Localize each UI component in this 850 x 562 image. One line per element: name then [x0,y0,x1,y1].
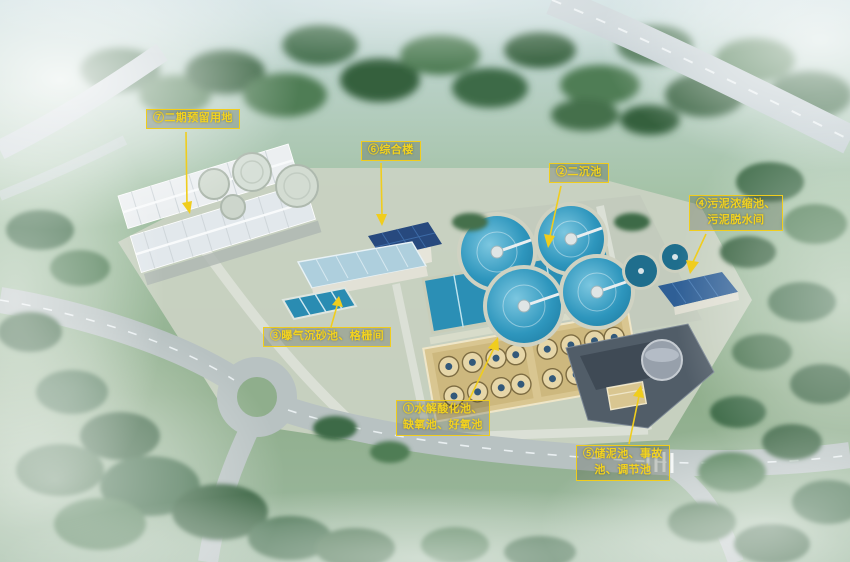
label-text: 污泥脱水间 [696,213,776,229]
label-text: ⑥综合楼 [368,143,414,159]
label-secondary-clarifier: ②二沉池 [549,163,609,183]
label-storage-emergency-regulating-tanks: ⑤储泥池、事故 池、调节池 [576,445,670,481]
label-text: ④污泥浓缩池、 [696,197,776,213]
label-text: ⑤储泥池、事故 [583,447,663,463]
label-text: ⑦二期预留用地 [153,111,233,127]
scene-canvas [0,0,850,562]
label-admin-building: ⑥综合楼 [361,141,421,161]
label-text: 缺氧池、好氧池 [403,418,483,434]
label-sludge-thickening-dewatering: ④污泥浓缩池、 污泥脱水间 [689,195,783,231]
label-biological-tanks: ①水解酸化池、 缺氧池、好氧池 [396,400,490,436]
label-grit-screen-area: ③曝气沉砂池、格栅间 [263,327,391,347]
aerial-plant-rendering: ⑦二期预留用地 ⑥综合楼 ②二沉池 ④污泥浓缩池、 污泥脱水间 ③曝气沉砂池、格… [0,0,850,562]
label-phase2-reserved-land: ⑦二期预留用地 [146,109,240,129]
label-text: ③曝气沉砂池、格栅间 [270,329,384,345]
label-text: ②二沉池 [556,165,602,181]
label-text: ①水解酸化池、 [403,402,483,418]
label-text: 池、调节池 [583,463,663,479]
